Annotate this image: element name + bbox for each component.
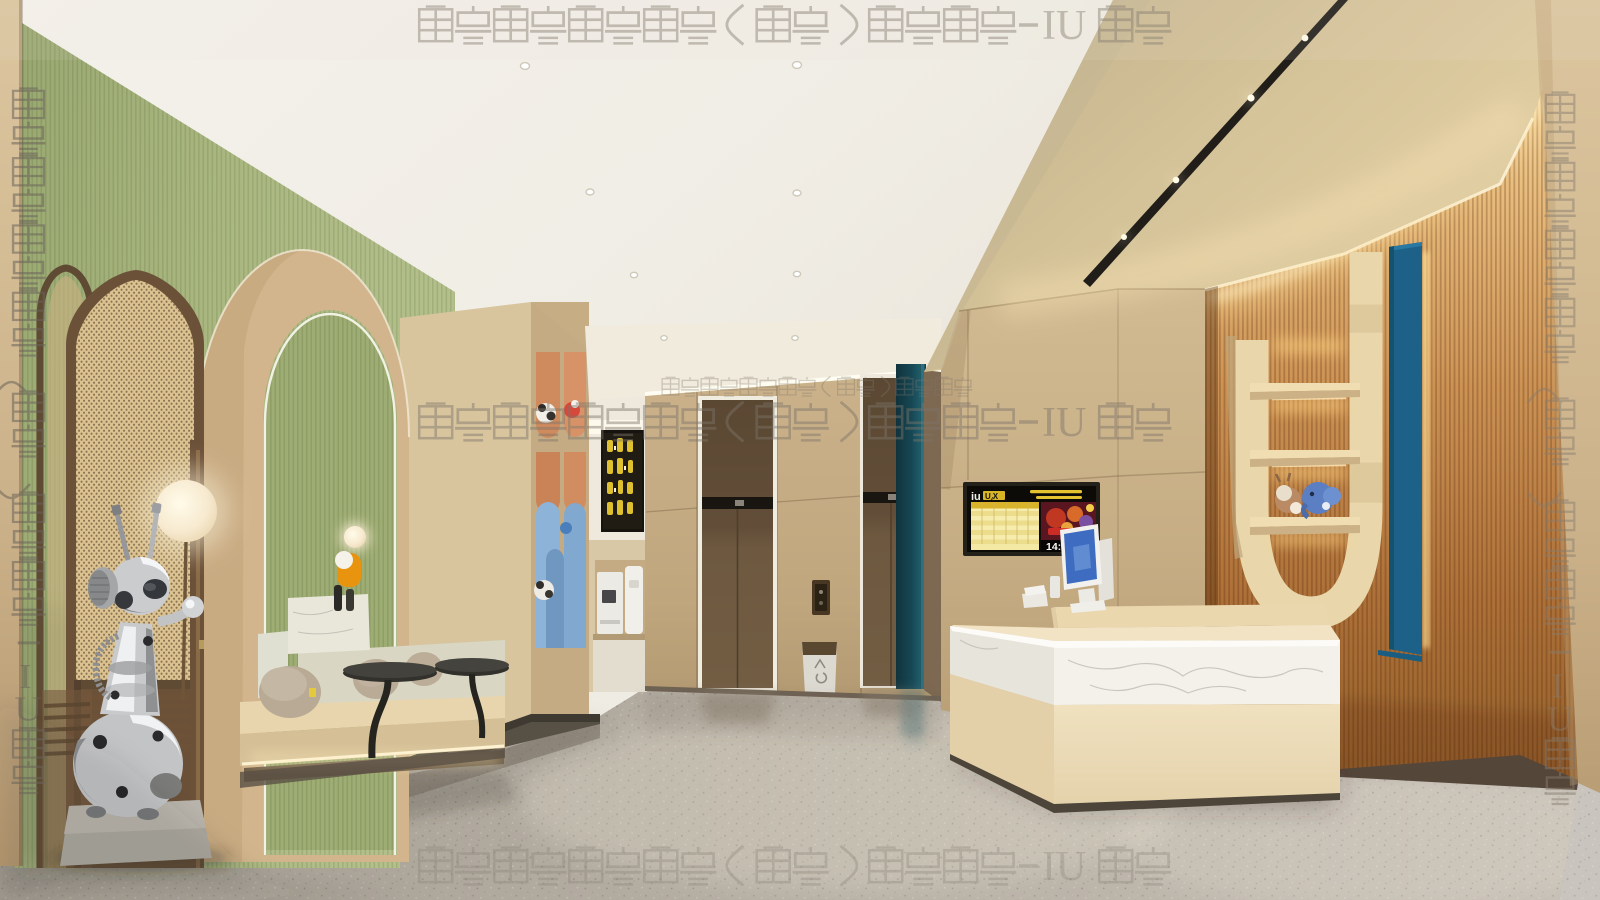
svg-text:U⁁X: U⁁X: [985, 492, 999, 502]
svg-text:iu: iu: [971, 491, 981, 503]
